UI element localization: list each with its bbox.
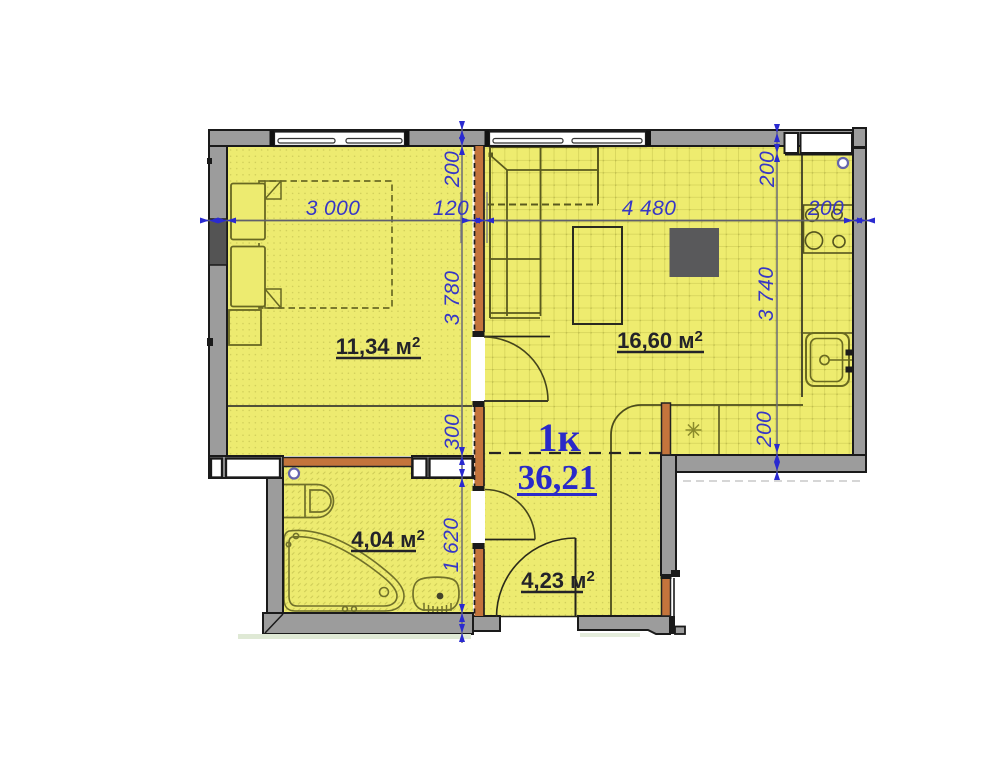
svg-text:3 740: 3 740: [755, 267, 778, 322]
svg-text:120: 120: [433, 197, 469, 220]
svg-text:4,23 м2: 4,23 м2: [521, 568, 595, 593]
svg-text:4 480: 4 480: [622, 197, 677, 220]
svg-text:200: 200: [441, 151, 464, 188]
svg-text:1к: 1к: [537, 415, 580, 460]
svg-text:36,21: 36,21: [518, 458, 597, 497]
svg-text:200: 200: [753, 411, 776, 448]
svg-text:11,34 м2: 11,34 м2: [336, 334, 421, 359]
svg-text:16,60 м2: 16,60 м2: [617, 328, 703, 353]
svg-text:3 000: 3 000: [306, 197, 361, 220]
svg-text:300: 300: [441, 414, 464, 450]
svg-text:1 620: 1 620: [440, 518, 463, 573]
svg-text:4,04 м2: 4,04 м2: [351, 527, 425, 552]
svg-text:200: 200: [807, 197, 844, 220]
svg-text:200: 200: [756, 151, 779, 188]
svg-text:3 780: 3 780: [441, 271, 464, 326]
